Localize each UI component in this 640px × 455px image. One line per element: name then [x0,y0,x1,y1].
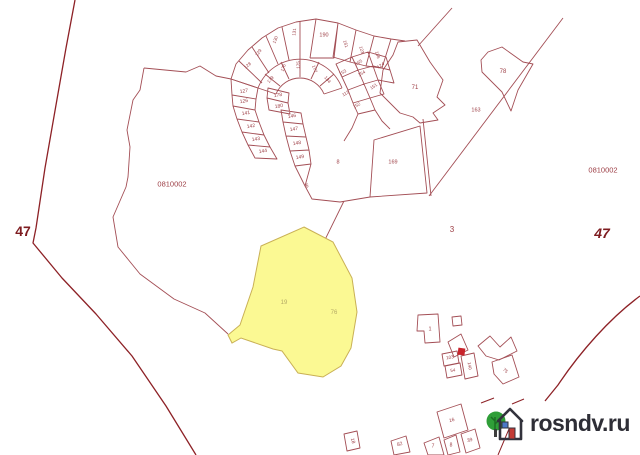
district-boundary-lines [33,0,640,455]
parcel-boundary-lines [113,8,563,455]
watermark: rosndv.ru [480,403,630,443]
highlighted-parcel [228,227,357,377]
red-building-marker [457,348,465,356]
watermark-text: rosndv.ru [530,410,630,437]
tree-and-house-icon [480,403,526,443]
map-canvas [0,0,640,455]
cadastral-map: 4747081000208100023717816316968127126141… [0,0,640,455]
